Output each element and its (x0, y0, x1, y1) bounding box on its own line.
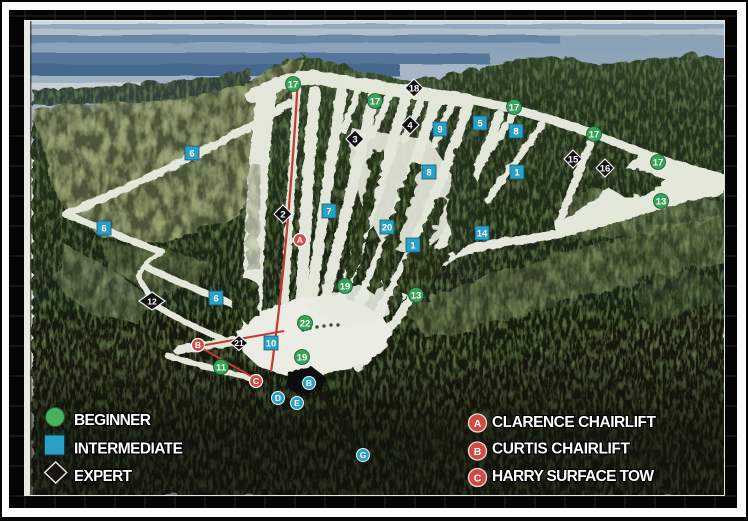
svg-text:19: 19 (340, 282, 351, 293)
svg-text:6: 6 (189, 149, 194, 160)
svg-text:CURTIS CHAIRLIFT: CURTIS CHAIRLIFT (492, 441, 631, 458)
svg-text:D: D (275, 393, 281, 403)
svg-text:10: 10 (266, 339, 277, 350)
svg-text:3: 3 (352, 135, 357, 146)
svg-text:5: 5 (477, 119, 483, 130)
svg-text:17: 17 (288, 80, 299, 91)
svg-text:HARRY SURFACE TOW: HARRY SURFACE TOW (492, 468, 654, 485)
svg-text:C: C (253, 376, 259, 386)
svg-text:22: 22 (300, 319, 311, 330)
svg-text:16: 16 (600, 164, 611, 175)
svg-text:BEGINNER: BEGINNER (74, 412, 151, 429)
svg-text:4: 4 (407, 121, 413, 132)
svg-text:E: E (294, 398, 300, 408)
svg-text:8: 8 (426, 168, 431, 179)
svg-text:A: A (297, 235, 303, 245)
svg-text:A: A (474, 418, 482, 430)
svg-text:17: 17 (509, 103, 520, 114)
svg-text:1: 1 (514, 168, 520, 179)
svg-text:8: 8 (513, 127, 518, 138)
svg-text:17: 17 (653, 158, 664, 169)
svg-text:C: C (474, 473, 482, 485)
svg-text:1: 1 (410, 241, 416, 252)
svg-text:19: 19 (297, 353, 308, 364)
svg-text:B: B (195, 340, 201, 350)
svg-text:B: B (474, 446, 482, 458)
svg-text:14: 14 (477, 229, 488, 240)
svg-text:17: 17 (370, 97, 381, 108)
svg-text:9: 9 (437, 125, 442, 136)
svg-text:6: 6 (213, 294, 218, 305)
svg-text:G: G (360, 450, 367, 460)
svg-text:13: 13 (656, 197, 667, 208)
svg-text:INTERMEDIATE: INTERMEDIATE (74, 441, 183, 458)
svg-text:7: 7 (326, 207, 331, 218)
svg-text:20: 20 (382, 223, 393, 234)
svg-text:11: 11 (216, 363, 227, 374)
svg-text:CLARENCE CHAIRLIFT: CLARENCE CHAIRLIFT (492, 414, 657, 431)
svg-text:2: 2 (280, 210, 285, 221)
svg-text:EXPERT: EXPERT (74, 468, 133, 485)
svg-text:12: 12 (147, 297, 157, 307)
svg-text:B: B (306, 378, 312, 388)
svg-text:13: 13 (411, 291, 422, 302)
svg-text:21: 21 (234, 338, 244, 348)
svg-text:17: 17 (589, 130, 600, 141)
svg-text:18: 18 (409, 84, 420, 95)
svg-text:15: 15 (568, 155, 579, 166)
svg-text:6: 6 (101, 224, 106, 235)
